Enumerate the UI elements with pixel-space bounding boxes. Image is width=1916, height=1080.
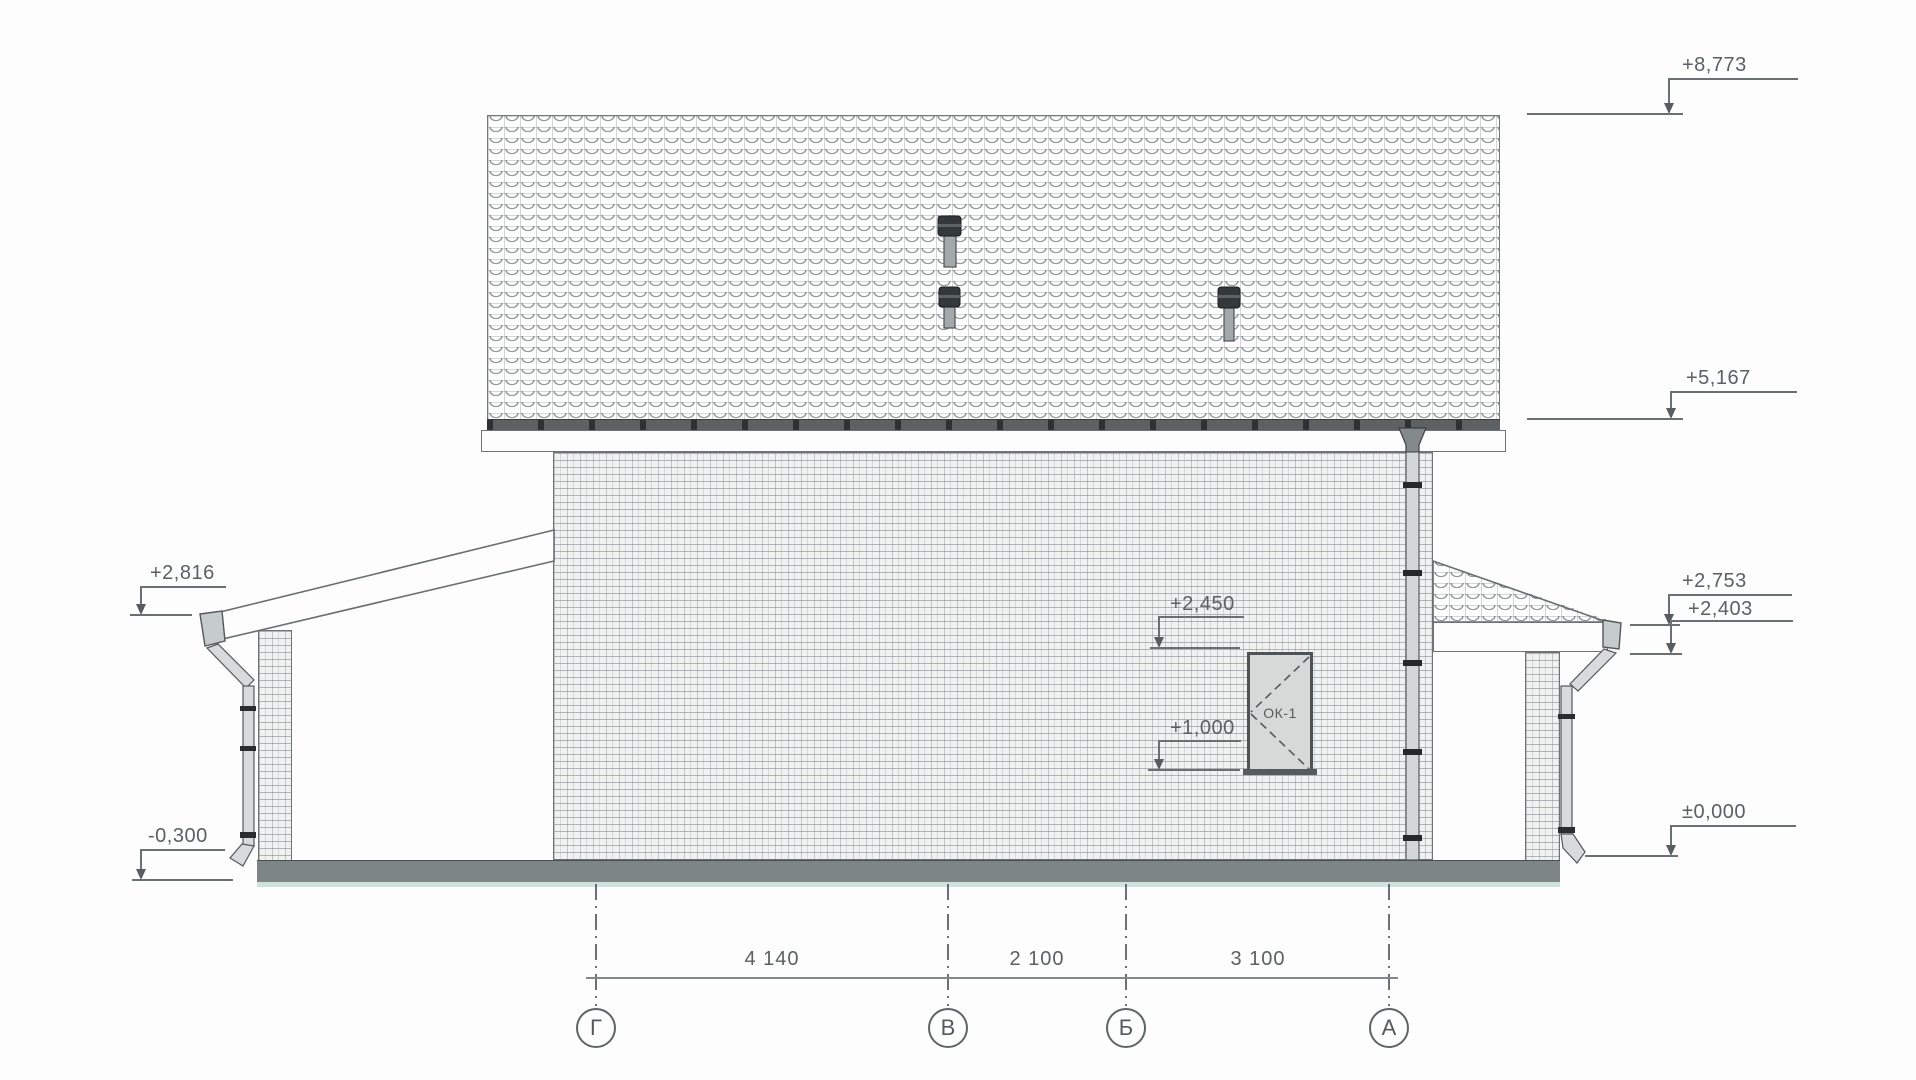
axis-letter: А xyxy=(1382,1015,1397,1041)
left-downpipe xyxy=(243,686,254,846)
dim-label-v-b: 2 100 xyxy=(967,948,1107,971)
left-downpipe-joint xyxy=(240,832,256,838)
right-downpipe-joint xyxy=(1558,827,1575,833)
right-downpipe-elbow-top xyxy=(1570,649,1616,691)
right-downpipe xyxy=(1561,686,1572,834)
right-canopy-roof xyxy=(1433,561,1607,622)
left-downpipe-clamp xyxy=(240,706,256,711)
level-line xyxy=(1630,624,1680,626)
left-gutter xyxy=(200,611,225,646)
window-sill xyxy=(1243,769,1317,775)
left-downpipe-elbow-top xyxy=(207,644,254,688)
elevation-value: +2,753 xyxy=(1682,570,1747,593)
elevation-value: ±0,000 xyxy=(1682,801,1746,824)
axis-letter: Б xyxy=(1119,1015,1133,1041)
right-porch-pillar xyxy=(1525,652,1560,860)
left-downpipe-clamp xyxy=(240,746,256,751)
level-line xyxy=(132,879,233,881)
elevation-drawing: ОК-1 xyxy=(0,0,1916,1080)
level-line xyxy=(1150,647,1240,649)
left-downpipe-shoe xyxy=(230,844,254,866)
elevation-value: +2,450 xyxy=(1170,593,1235,616)
axis-letter: В xyxy=(941,1015,956,1041)
level-line xyxy=(1527,113,1683,115)
level-line xyxy=(1585,855,1678,857)
elevation-value: +2,816 xyxy=(150,562,215,585)
axis-bubble-a: А xyxy=(1369,1008,1409,1048)
level-line xyxy=(130,614,192,616)
level-line xyxy=(1630,653,1682,655)
level-line xyxy=(1527,418,1683,420)
plinth-band xyxy=(257,860,1560,883)
window-label: ОК-1 xyxy=(1263,705,1297,721)
soffit-band xyxy=(481,430,1506,452)
right-downpipe-shoe xyxy=(1561,834,1585,863)
dim-label-b-a: 3 100 xyxy=(1188,948,1328,971)
axis-bubble-v: В xyxy=(928,1008,968,1048)
right-canopy-fascia xyxy=(1433,622,1608,652)
axis-bubble-g: Г xyxy=(576,1008,616,1048)
axis-bubble-b: Б xyxy=(1106,1008,1146,1048)
elevation-value: +8,773 xyxy=(1682,54,1747,77)
elevation-value: +5,167 xyxy=(1686,367,1751,390)
left-canopy-roof xyxy=(204,530,554,642)
dim-label-g-v: 4 140 xyxy=(702,948,842,971)
right-downpipe-clamp xyxy=(1558,714,1575,719)
plinth-accent-strip xyxy=(257,882,1560,887)
elevation-value: -0,300 xyxy=(148,825,208,848)
level-line xyxy=(1148,769,1240,771)
elevation-value: +2,403 xyxy=(1688,598,1753,621)
window-ok1: ОК-1 xyxy=(1247,652,1313,774)
main-roof-tiles xyxy=(487,115,1500,420)
axis-letter: Г xyxy=(590,1015,602,1041)
elevation-value: +1,000 xyxy=(1170,717,1235,740)
left-porch-pillar xyxy=(258,630,292,860)
